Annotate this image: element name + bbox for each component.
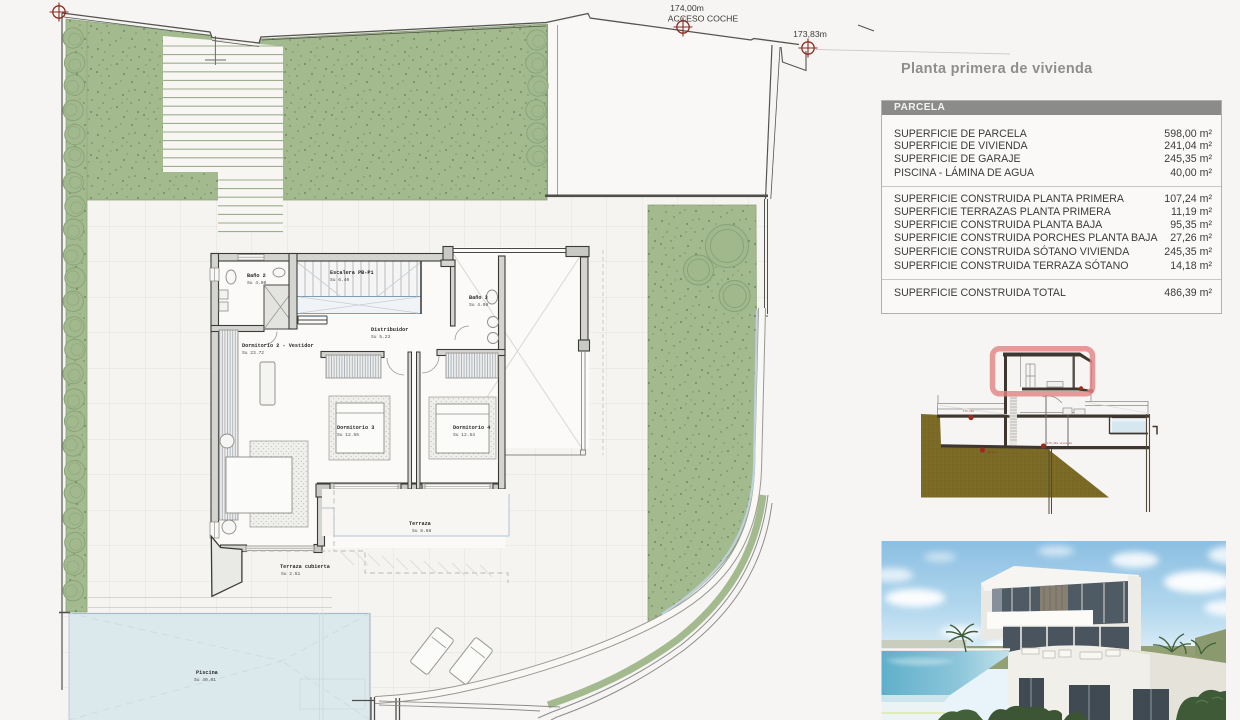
svg-text:Dormitorio 2 - Vestidor: Dormitorio 2 - Vestidor — [242, 343, 314, 349]
svg-text:173,83m: 173,83m — [793, 29, 827, 39]
svg-text:Su 12.55: Su 12.55 — [337, 432, 359, 438]
svg-text:Dormitorio 4: Dormitorio 4 — [453, 425, 490, 431]
svg-text:Dormitorio 3: Dormitorio 3 — [337, 425, 374, 431]
svg-text:Su 4.98: Su 4.98 — [469, 302, 489, 308]
svg-text:Su 23.72: Su 23.72 — [242, 350, 264, 356]
svg-text:Escalera PB-P1: Escalera PB-P1 — [330, 270, 374, 276]
svg-text:ACCESO COCHE: ACCESO COCHE — [668, 14, 739, 24]
svg-text:176,50m: 176,50m — [963, 410, 974, 413]
svg-text:Piscina: Piscina — [196, 670, 218, 676]
svg-text:Baño 2: Baño 2 — [247, 273, 266, 279]
svg-text:Terraza cubierta: Terraza cubierta — [280, 564, 330, 570]
svg-text:Su 8.68: Su 8.68 — [412, 528, 432, 534]
svg-text:Baño 3: Baño 3 — [469, 295, 488, 301]
svg-text:175,20m vivienda: 175,20m vivienda — [1047, 441, 1072, 445]
svg-text:Su 6.40: Su 6.40 — [330, 277, 350, 283]
svg-text:Su 2.51: Su 2.51 — [281, 571, 301, 577]
svg-text:Su 40.01: Su 40.01 — [194, 677, 216, 683]
svg-text:Su 5.23: Su 5.23 — [371, 334, 391, 340]
svg-text:garaje: garaje — [987, 450, 997, 454]
svg-text:Distribuidor: Distribuidor — [371, 327, 408, 333]
svg-text:Su 12.54: Su 12.54 — [453, 432, 475, 438]
svg-text:Terraza: Terraza — [409, 521, 431, 527]
svg-text:174,00m: 174,00m — [670, 3, 704, 13]
svg-text:Su 4.90: Su 4.90 — [247, 280, 267, 286]
